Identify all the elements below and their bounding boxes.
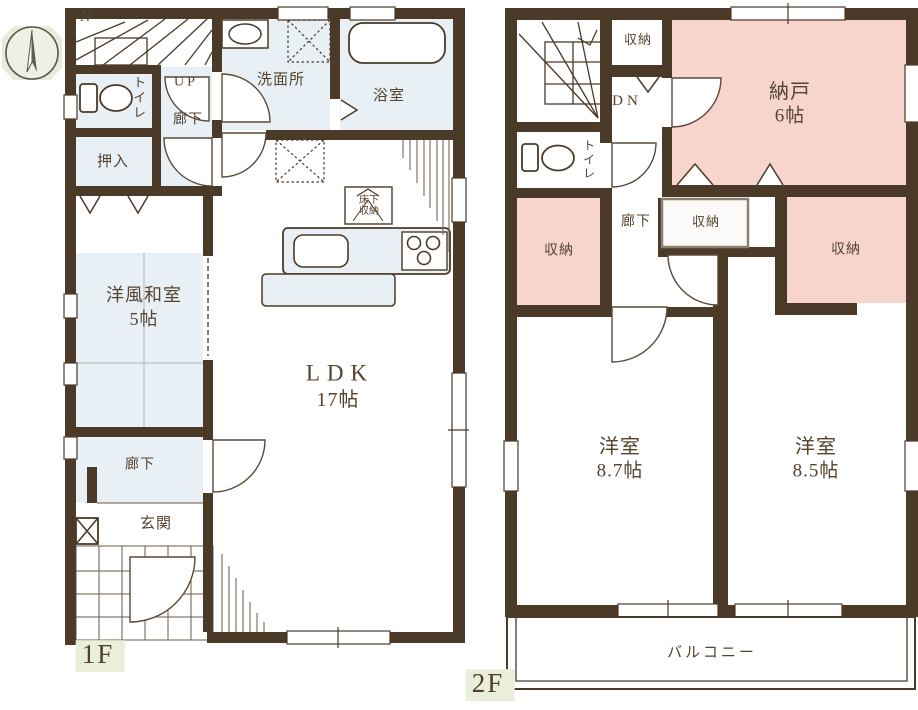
room-label-upper-hallway-1f: 廊下 [173, 112, 203, 127]
toilet2-icon [522, 144, 574, 171]
room-label-toilet-1f: トイレ [131, 76, 145, 121]
room-label-entrance: 玄関 [140, 516, 172, 533]
bathtub-icon [349, 23, 445, 63]
label-underfloor-storage: 床下収納 [356, 195, 382, 217]
room-label-storage-room: 納戸 [769, 81, 811, 103]
room-label-ldk: LDK [306, 360, 374, 385]
compass-icon [2, 26, 62, 80]
room-size-japanese-room: 5帖 [130, 310, 159, 330]
room-size-ldk: 17帖 [317, 389, 360, 411]
toilet-icon [80, 84, 132, 112]
washbasin-icon [222, 20, 268, 48]
floor1-tag: 1F [76, 640, 125, 672]
room-label-bedroom-right: 洋室 [795, 436, 837, 458]
room-label-closet-right-2f: 収納 [831, 242, 861, 257]
entrance-pillar-icon [76, 518, 98, 544]
room-label-closet-middle-2f: 収納 [692, 215, 720, 229]
floor1-sliding-door [203, 256, 213, 360]
room-label-washroom: 洗面所 [257, 72, 305, 89]
room-label-hallway-1f: 廊下 [125, 457, 155, 472]
room-label-closet-top-2f: 収納 [624, 33, 652, 47]
room-label-closet-left-2f: 収納 [544, 243, 574, 258]
room-label-bathroom: 浴室 [373, 88, 405, 105]
floorplan-canvas: N トイレ UP 廊下 押入 洗面所 浴室 洋風和室 5帖 LDK 17帖 床下… [0, 0, 918, 710]
floor2-tag: 2F [466, 669, 515, 701]
room-label-japanese-room: 洋風和室 [106, 286, 182, 306]
stairs-dn-label: DN [612, 93, 642, 110]
stairs-up-label: UP [174, 74, 198, 89]
room-size-storage-room: 6帖 [775, 107, 806, 128]
room-label-hallway-2f: 廊下 [621, 214, 651, 229]
room-size-bedroom-left: 8.7帖 [597, 462, 644, 483]
room-size-bedroom-right: 8.5帖 [793, 462, 840, 483]
room-label-toilet-2f: トイレ [581, 139, 594, 181]
room-label-balcony: バルコニー [667, 645, 757, 662]
compass-north-label: N [80, 8, 92, 26]
room-label-oshiire: 押入 [97, 154, 129, 171]
room-label-bedroom-left: 洋室 [599, 436, 641, 458]
